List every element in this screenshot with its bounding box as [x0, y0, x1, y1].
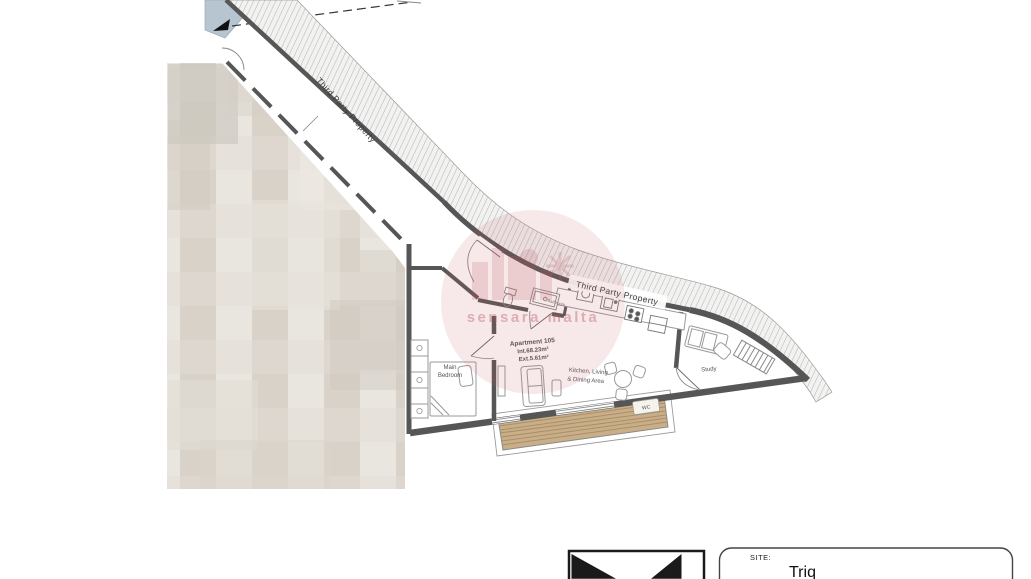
- floor-plan-drawing: WC Third Party Property Third Party Prop…: [0, 0, 1031, 579]
- watermark: sensara malta: [441, 210, 625, 394]
- site-box: SITE: Triq: [720, 548, 1013, 579]
- floor-plan-canvas: WC Third Party Property Third Party Prop…: [0, 0, 1031, 579]
- dining-chair: [615, 389, 627, 401]
- logo-box: [569, 551, 704, 579]
- dining-chair: [632, 365, 646, 379]
- dining-table: [615, 371, 632, 388]
- watermark-text: sensara malta: [467, 309, 600, 326]
- watermark-circle: [441, 210, 625, 394]
- svg-text:Main: Main: [443, 365, 456, 371]
- watermark-star: [546, 252, 574, 280]
- hob: [624, 305, 643, 322]
- wc-label: WC: [642, 404, 651, 411]
- site-label: SITE:: [750, 553, 771, 562]
- wardrobe: [411, 340, 428, 418]
- title-block: SITE: Triq: [569, 548, 1013, 579]
- dimension-tick: [303, 116, 318, 131]
- study-label: Study: [701, 366, 717, 373]
- svg-text:Bedroom: Bedroom: [438, 373, 462, 379]
- study-door-arc: [676, 367, 700, 390]
- dining-set: [604, 362, 646, 401]
- site-value: Triq: [789, 564, 816, 579]
